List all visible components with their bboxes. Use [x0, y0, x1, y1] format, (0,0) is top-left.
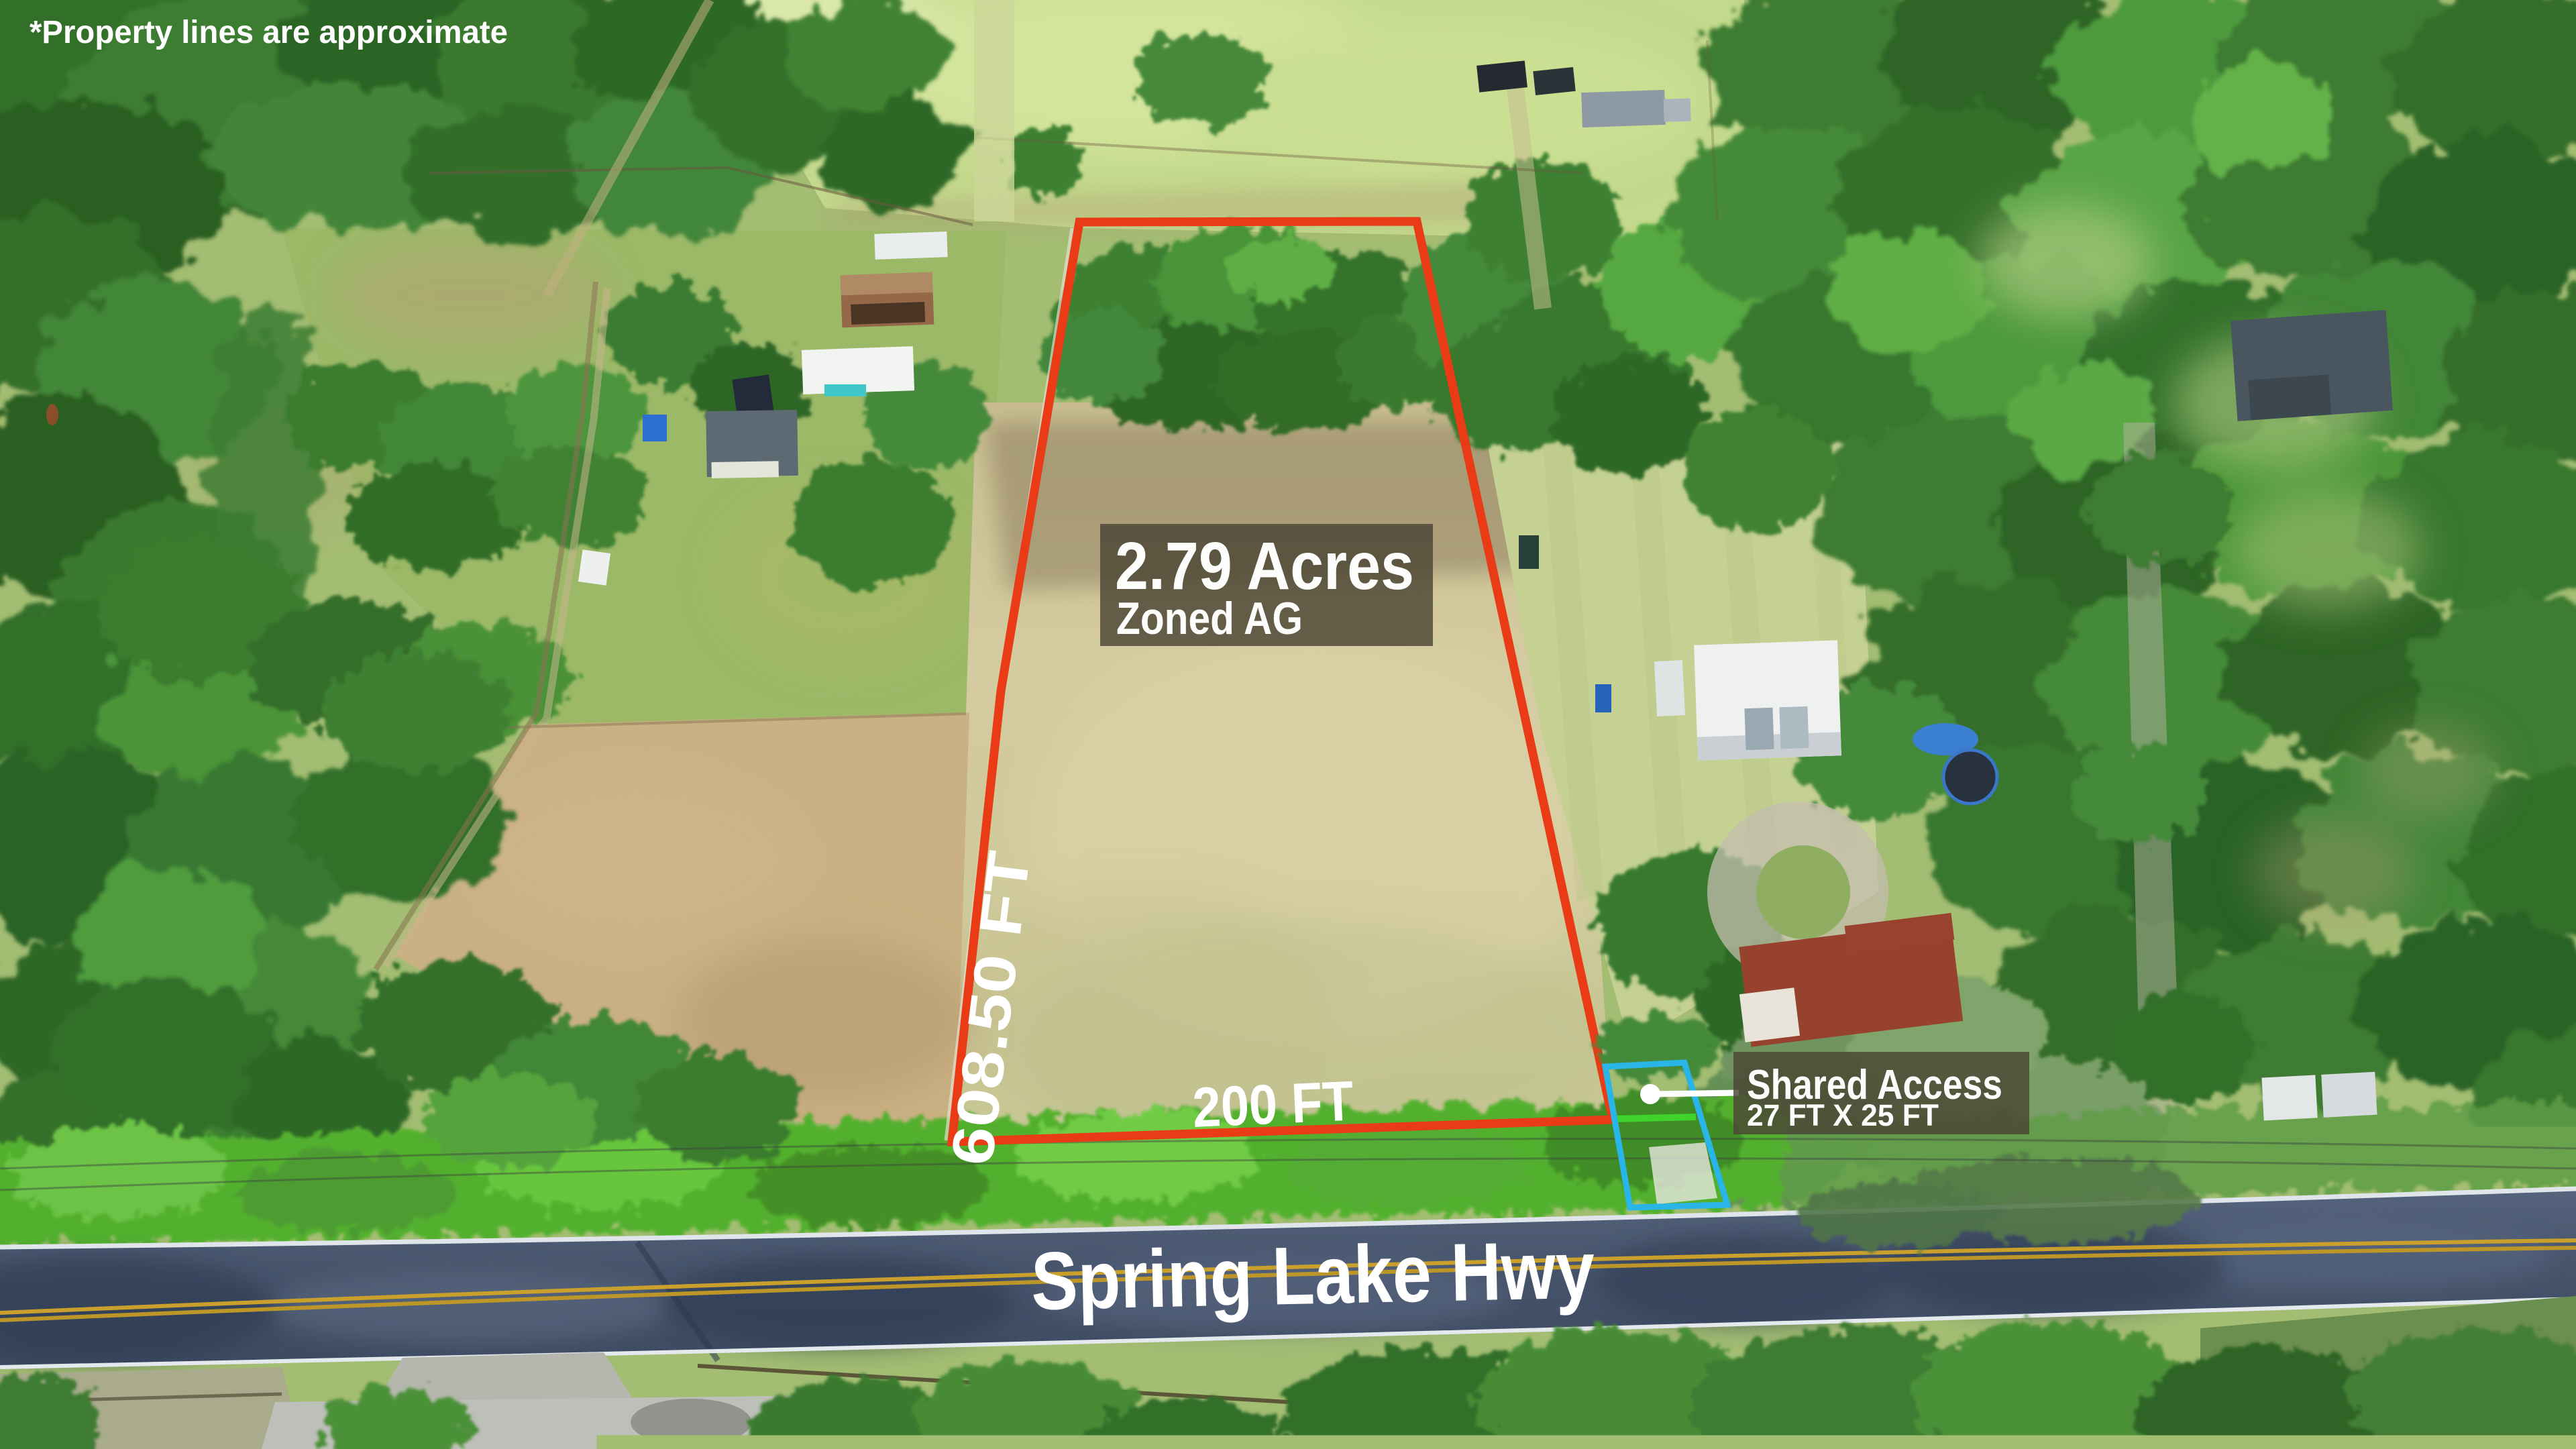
svg-text:Zoned AG: Zoned AG	[1116, 593, 1303, 644]
svg-text:*Property lines are approximat: *Property lines are approximate	[30, 15, 508, 50]
svg-text:27 FT X 25 FT: 27 FT X 25 FT	[1747, 1098, 1939, 1132]
svg-text:200 FT: 200 FT	[1191, 1069, 1355, 1139]
svg-text:Spring Lake Hwy: Spring Lake Hwy	[1030, 1224, 1596, 1327]
